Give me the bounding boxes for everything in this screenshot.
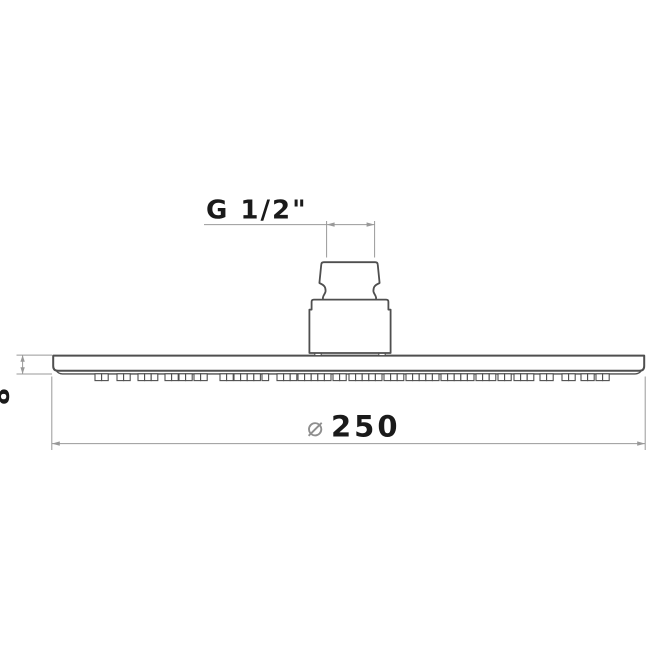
nozzle — [318, 374, 325, 381]
nozzle — [603, 374, 610, 381]
nozzle — [220, 374, 227, 381]
thread-dim-arrow-left — [327, 222, 335, 226]
nozzle — [165, 374, 172, 381]
thickness-arrow-bottom — [20, 367, 24, 374]
nozzle — [489, 374, 496, 381]
nozzle — [369, 374, 376, 381]
nozzle — [476, 374, 483, 381]
thickness-arrow-top — [20, 355, 24, 362]
plate-thickness-label: 8 — [0, 388, 15, 405]
nozzle — [151, 374, 158, 381]
dimension-thread-size: G 1/2" — [204, 196, 375, 258]
nozzle — [362, 374, 369, 381]
nozzle — [521, 374, 528, 381]
plate-outline — [53, 356, 644, 371]
nozzle — [186, 374, 193, 381]
nozzle — [527, 374, 534, 381]
diameter-arrow-left — [52, 441, 60, 445]
nozzle — [454, 374, 461, 381]
nozzle — [340, 374, 347, 381]
nozzle — [461, 374, 468, 381]
nozzle — [290, 374, 297, 381]
diameter-arrow-right — [637, 441, 645, 445]
diameter-symbol: ⌀ — [307, 412, 323, 443]
nozzle — [117, 374, 124, 381]
technical-drawing: G 1/2" 8 ⌀ 250 — [0, 0, 650, 650]
nozzle — [505, 374, 512, 381]
nozzle — [262, 374, 269, 381]
nozzle — [234, 374, 241, 381]
nozzle — [540, 374, 547, 381]
thread-dim-arrow-right — [367, 222, 375, 226]
nozzle — [254, 374, 261, 381]
dimension-plate-thickness: 8 — [0, 355, 52, 405]
nozzle — [569, 374, 576, 381]
nozzle — [391, 374, 398, 381]
nozzle — [298, 374, 305, 381]
nozzle — [284, 374, 291, 381]
nozzle — [172, 374, 179, 381]
nozzle — [227, 374, 234, 381]
nozzle — [201, 374, 208, 381]
nozzle — [247, 374, 254, 381]
nozzle — [179, 374, 186, 381]
diameter-value-label: 250 — [331, 410, 401, 444]
nozzle — [588, 374, 595, 381]
nozzle — [397, 374, 404, 381]
nozzle — [406, 374, 413, 381]
thread-connector — [319, 262, 379, 299]
nozzle — [241, 374, 248, 381]
thread-size-label: G 1/2" — [206, 196, 308, 226]
nozzle — [333, 374, 340, 381]
nozzle — [426, 374, 433, 381]
nozzle — [305, 374, 312, 381]
nozzle — [349, 374, 356, 381]
nozzle — [194, 374, 201, 381]
nozzle — [138, 374, 145, 381]
nozzle — [432, 374, 439, 381]
shower-plate — [53, 356, 644, 374]
mounting-collar — [309, 300, 390, 353]
nozzle — [356, 374, 363, 381]
drawing-canvas: G 1/2" 8 ⌀ 250 — [0, 0, 650, 650]
nozzle — [441, 374, 448, 381]
nozzle — [95, 374, 102, 381]
dimension-plate-diameter: ⌀ 250 — [52, 377, 645, 451]
nozzle — [145, 374, 152, 381]
nozzle — [419, 374, 426, 381]
nozzle — [514, 374, 521, 381]
nozzle — [562, 374, 569, 381]
nozzle — [581, 374, 588, 381]
nozzle — [375, 374, 382, 381]
nozzle — [596, 374, 603, 381]
nozzle — [124, 374, 131, 381]
nozzle — [413, 374, 420, 381]
nozzle — [102, 374, 109, 381]
nozzle — [324, 374, 331, 381]
nozzle — [483, 374, 490, 381]
nozzle — [384, 374, 391, 381]
nozzle — [467, 374, 474, 381]
nozzle-row — [95, 374, 609, 381]
nozzle — [311, 374, 318, 381]
nozzle — [547, 374, 554, 381]
nozzle — [498, 374, 505, 381]
nozzle — [277, 374, 284, 381]
nozzle — [448, 374, 455, 381]
